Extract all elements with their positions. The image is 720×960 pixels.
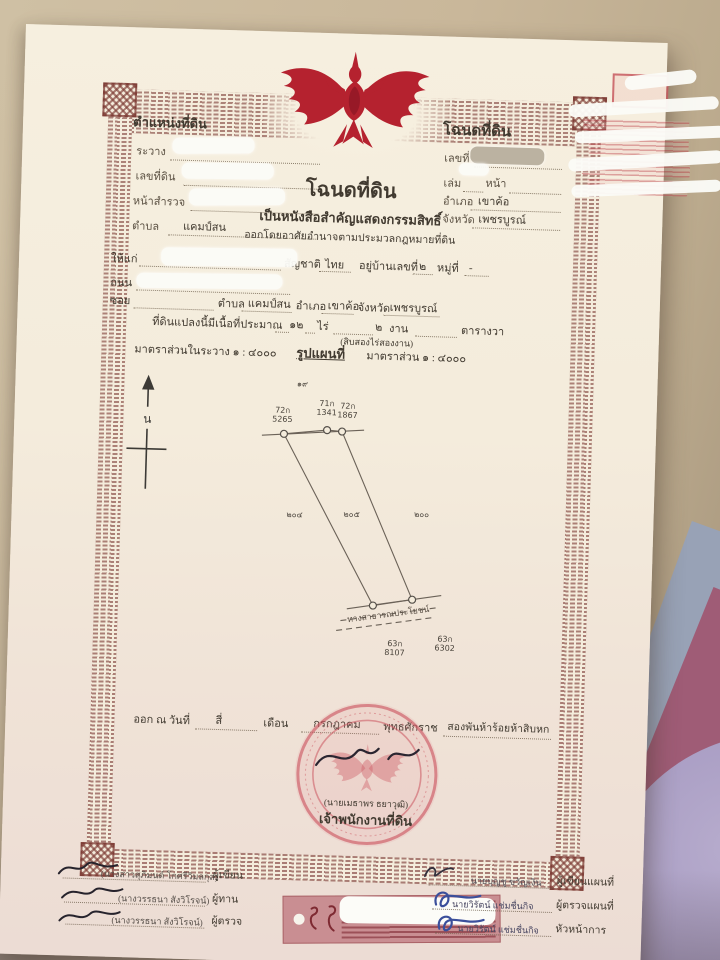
svg-text:๒๐๔: ๒๐๔ xyxy=(286,510,302,519)
house-no-label: อยู่บ้านเลขที่ xyxy=(359,260,418,274)
garuda-emblem xyxy=(270,45,438,170)
map-writer-name: นายบุญชู ขวัญเงิน xyxy=(471,876,542,888)
svg-text:72ก: 72ก xyxy=(340,401,355,410)
owner-tambon-value: แคมป์สน xyxy=(248,298,291,312)
ngan-value: ๒ xyxy=(375,321,383,334)
border-corner-tl xyxy=(102,82,137,117)
rai-label: ไร่ xyxy=(317,321,329,334)
whiteout-mark xyxy=(172,137,254,153)
whiteout-mark xyxy=(189,188,285,206)
area-prefix: ที่ดินแปลงนี้มีเนื้อที่ประมาณ xyxy=(152,316,283,333)
officer-signature xyxy=(312,739,425,778)
svg-text:72ก: 72ก xyxy=(275,406,290,415)
moo-value: - xyxy=(469,262,473,275)
tambon-value: แคมป์สน xyxy=(183,221,226,235)
owner-amphoe-label: อำเภอ xyxy=(296,300,327,314)
survey-page-label: หน้าสำรวจ xyxy=(133,195,186,209)
rawang-label: ระวาง xyxy=(136,145,166,159)
issue-day: สี่ xyxy=(215,715,222,728)
given-to-label: ให้แก่ xyxy=(111,253,138,266)
svg-text:8107: 8107 xyxy=(384,648,405,658)
deed-paper: ตำแหน่งที่ดิน ระวาง เลขที่ดิน หน้าสำรวจ … xyxy=(0,24,668,960)
soi-label: ซอย xyxy=(110,295,131,308)
owner-province-label: จังหวัด xyxy=(358,302,391,316)
issue-prefix: ออก ณ วันที่ xyxy=(133,713,190,727)
svg-text:๒๐๐: ๒๐๐ xyxy=(414,510,429,519)
amphoe-label: อำเภอ xyxy=(443,195,474,209)
ngan-label: งาน xyxy=(389,323,408,336)
moo-label: หมู่ที่ xyxy=(437,262,459,275)
main-title: โฉนดที่ดิน xyxy=(305,178,397,204)
province-value: เพชรบูรณ์ xyxy=(478,214,526,228)
proofreader-signature xyxy=(60,883,125,907)
sticker-marks xyxy=(304,902,344,936)
photo-of-land-deed: ตำแหน่งที่ดิน ระวาง เลขที่ดิน หน้าสำรวจ … xyxy=(0,0,720,960)
map-writer-role: ผู้เขียนแผนที่ xyxy=(557,876,615,890)
proofreader-role: ผู้ทาน xyxy=(212,894,239,907)
amphoe-value: เขาค้อ xyxy=(478,195,510,209)
parcel-map: 72ก5265 71ก1341 72ก1867 63ก8107 63ก6302 … xyxy=(107,362,496,673)
owner-tambon-label: ตำบล xyxy=(218,298,245,311)
map-inspector-role: ผู้ตรวจแผนที่ xyxy=(556,900,614,914)
page-label: หน้า xyxy=(485,178,506,191)
whiteout-mark xyxy=(182,162,274,179)
svg-text:๑๙: ๑๙ xyxy=(297,379,308,388)
svg-text:๒๐๕: ๒๐๕ xyxy=(343,510,359,519)
section-head-role: หัวหน้าการ xyxy=(555,924,606,938)
area-spelled: (สิบสองไร่สองงาน) xyxy=(340,336,413,348)
owner-amphoe-value: เขาค้อ xyxy=(328,300,360,314)
svg-text:71ก: 71ก xyxy=(319,399,334,408)
main-subtitle2: ออกโดยอาศัยอำนาจตามประมวลกฎหมายที่ดิน xyxy=(244,230,455,248)
tambon-label: ตำบล xyxy=(132,220,159,233)
wa-label: ตารางวา xyxy=(461,325,504,339)
svg-text:63ก: 63ก xyxy=(387,639,402,648)
svg-text:1341: 1341 xyxy=(316,408,337,418)
redaction-gray xyxy=(470,146,544,165)
whiteout-mark xyxy=(459,163,489,176)
officer-title: เจ้าพนักงานที่ดิน xyxy=(319,812,413,830)
main-subtitle: เป็นหนังสือสำคัญแสดงกรรมสิทธิ์ xyxy=(259,209,441,229)
whiteout-mark xyxy=(161,247,297,267)
scale-left: มาตราส่วนในระวาง ๑ : ๔๐๐๐ xyxy=(134,343,277,360)
road-label: ถนน xyxy=(110,277,132,290)
owner-province-value: เพชรบูรณ์ xyxy=(390,302,438,316)
position-title: ตำแหน่งที่ดิน xyxy=(133,115,207,132)
svg-text:1867: 1867 xyxy=(337,410,358,420)
whiteout-mark xyxy=(136,273,282,290)
land-no-label: เลขที่ดิน xyxy=(135,170,175,184)
writer-role: ผู้เขียน xyxy=(213,870,244,883)
inspector-role: ผู้ตรวจ xyxy=(211,916,242,929)
border-band-right xyxy=(555,102,602,888)
rai-value: ๑๒ xyxy=(289,319,304,332)
handwritten-mark xyxy=(421,860,458,883)
svg-text:6302: 6302 xyxy=(434,643,455,653)
house-no-value: ๒ xyxy=(419,261,427,274)
month-label: เดือน xyxy=(263,717,288,730)
svg-text:5265: 5265 xyxy=(272,414,293,424)
issue-year: สองพันห้าร้อยห้าสิบหก xyxy=(447,722,549,737)
map-caption: รูปแผนที่ xyxy=(296,346,345,362)
deed-title: โฉนดที่ดิน xyxy=(443,122,512,141)
province-label: จังหวัด xyxy=(442,213,475,227)
volume-label: เล่ม xyxy=(443,177,461,190)
scale-right: มาตราส่วน ๑ : ๔๐๐๐ xyxy=(366,350,466,366)
svg-text:63ก: 63ก xyxy=(437,634,452,643)
